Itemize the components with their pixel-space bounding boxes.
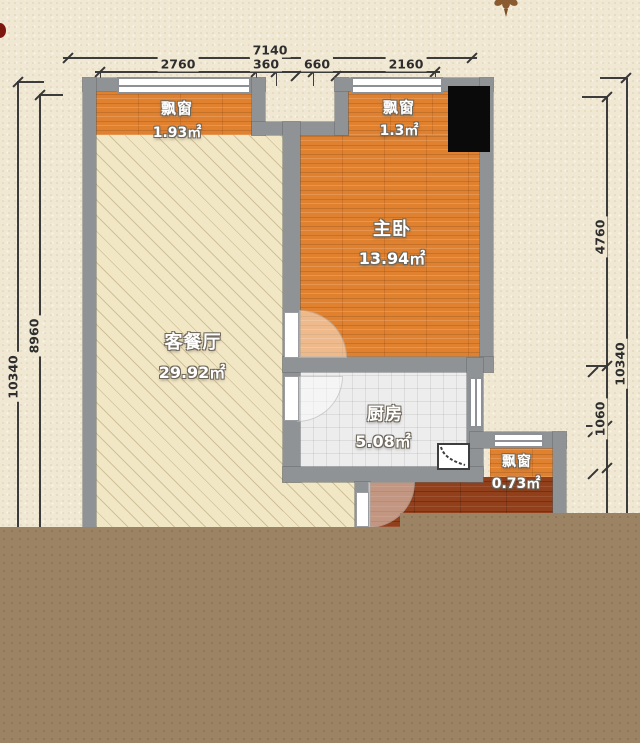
lower-room-door-leaf xyxy=(356,492,369,527)
dim-cap xyxy=(17,81,44,83)
gas-meter-icon xyxy=(437,443,470,470)
dim-label-left-inner: 8960 xyxy=(27,316,42,357)
bay-left-label: 飘窗 xyxy=(161,98,193,119)
living-dining-label: 客餐厅 xyxy=(165,328,222,354)
dim-label-top-total: 7140 xyxy=(250,43,291,58)
wall-bedroom-bottom xyxy=(283,357,493,372)
dim-label-top-seg0: 2760 xyxy=(158,57,199,72)
dim-tick xyxy=(587,366,598,377)
dim-cap xyxy=(582,96,607,98)
dim-line-right-outer xyxy=(626,78,628,527)
wall-middle xyxy=(283,122,300,482)
dim-tick xyxy=(587,468,598,479)
red-stain-mark xyxy=(0,23,6,38)
dim-cap xyxy=(39,94,63,96)
dim-label-top-seg2: 660 xyxy=(301,57,333,72)
kitchen-label: 厨房 xyxy=(367,400,403,425)
bay-left-area: 1.93㎡ xyxy=(153,122,202,142)
living-dining-floor-strip xyxy=(283,482,355,527)
bottom-overlay xyxy=(0,527,640,743)
window-bay-lower-right xyxy=(493,433,544,448)
column-block xyxy=(448,86,490,152)
bay-lower-right-area: 0.73㎡ xyxy=(492,473,541,493)
window-bay-left xyxy=(117,77,251,94)
wall-left-outer xyxy=(83,78,96,527)
master-bedroom-label: 主卧 xyxy=(373,215,411,241)
window-kitchen xyxy=(469,377,483,428)
bay-lower-right-label: 飘窗 xyxy=(502,451,532,471)
dim-line-left-inner xyxy=(39,95,41,527)
dim-label-right-seg1: 1060 xyxy=(593,399,608,440)
dim-ext-line xyxy=(313,72,314,86)
master-bedroom-area: 13.94㎡ xyxy=(359,245,426,269)
dim-label-top-seg1: 360 xyxy=(250,57,282,72)
bay-top-right-label: 飘窗 xyxy=(383,97,415,118)
bay-top-right-area: 1.3㎡ xyxy=(380,120,419,140)
kitchen-door-leaf xyxy=(284,376,299,421)
bedroom-door-leaf xyxy=(284,312,299,358)
floor-plan: 7140 2760 360 660 2160 10340 8960 10340 … xyxy=(0,0,640,743)
wall-notch-bottom xyxy=(252,122,348,135)
living-dining-area: 29.92㎡ xyxy=(159,359,226,383)
dim-label-left-outer: 10340 xyxy=(6,352,21,402)
dim-label-top-seg3: 2160 xyxy=(386,57,427,72)
dim-label-right-seg0: 4760 xyxy=(593,217,608,258)
dim-line-right-inner xyxy=(606,97,608,527)
fleur-ornament-icon xyxy=(490,0,522,19)
kitchen-area: 5.08㎡ xyxy=(355,428,410,452)
dim-ext-line xyxy=(276,72,277,86)
dim-line-left-outer xyxy=(17,82,19,527)
window-bay-top-right xyxy=(351,77,443,94)
dim-label-right-outer: 10340 xyxy=(613,339,628,389)
